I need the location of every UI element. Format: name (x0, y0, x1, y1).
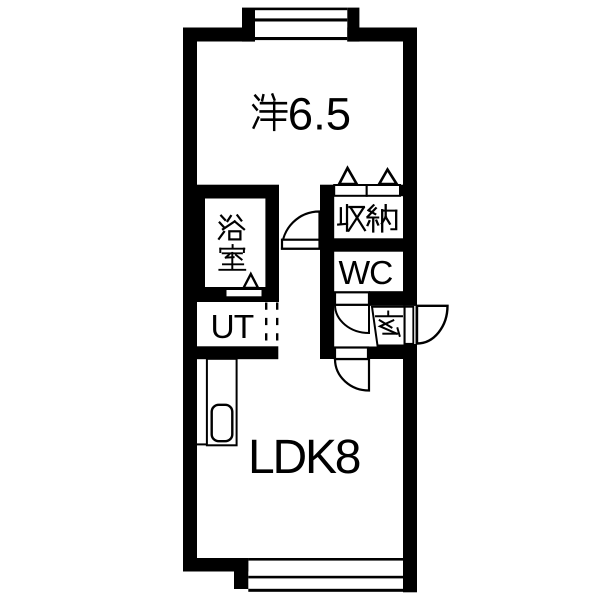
svg-text:UT: UT (211, 309, 254, 346)
svg-text:WC: WC (339, 255, 393, 292)
svg-text:6.5: 6.5 (288, 89, 351, 140)
svg-text:LDK8: LDK8 (248, 431, 360, 484)
